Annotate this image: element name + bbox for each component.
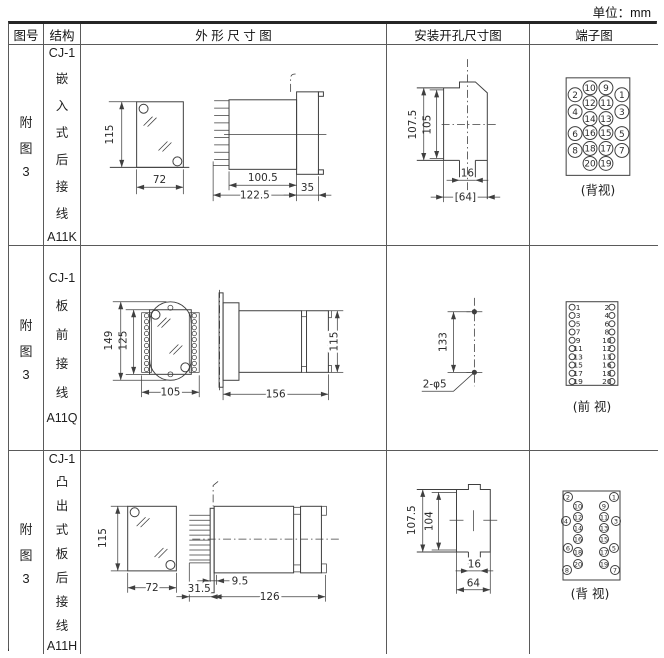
svg-text:2: 2 xyxy=(566,493,570,501)
svg-text:13: 13 xyxy=(600,524,608,532)
mounting-plate-arcs xyxy=(150,302,192,380)
unit-label: 单位：mm xyxy=(593,2,651,21)
front-view: 115 72 xyxy=(97,506,177,594)
flange xyxy=(297,92,319,174)
mounting-drawing-row1: 107.5 105 16 [64] xyxy=(387,45,530,246)
dim-height-inner xyxy=(436,492,441,550)
svg-text:17: 17 xyxy=(600,145,611,155)
svg-text:19: 19 xyxy=(573,377,583,386)
structure-cell-row2: CJ-1板前接线A11Q xyxy=(44,246,81,451)
mounting-svg-row2: 133 2-φ5 xyxy=(387,246,529,450)
terminal-pins xyxy=(189,515,210,560)
front-view: 115 72 xyxy=(104,102,189,194)
side-view: 100.5 122.5 35 xyxy=(213,74,331,202)
mounting-plate xyxy=(210,508,214,592)
header-structure: 结构 xyxy=(44,24,81,45)
glass-hatch xyxy=(169,345,182,355)
dim-label-pin-length: 31.5 xyxy=(188,583,211,595)
rear-cover xyxy=(307,311,329,373)
terminal-drawing-row2: (前 视) 1234567891011121313151617181920 xyxy=(530,246,658,451)
dim-front-height xyxy=(119,102,124,168)
svg-text:18: 18 xyxy=(584,145,596,155)
dim-label-front-height: 115 xyxy=(97,528,109,548)
svg-text:16: 16 xyxy=(584,129,596,139)
fig-no-cell-row2: 附图3 xyxy=(9,246,44,451)
corner-screw-icon xyxy=(130,508,139,517)
dim-label-width: 64 xyxy=(467,577,481,589)
view-label: (背 视) xyxy=(571,586,610,601)
front-view: 149 125 105 xyxy=(103,302,199,399)
svg-text:11: 11 xyxy=(600,513,608,521)
svg-text:15: 15 xyxy=(600,129,611,139)
structure-cell-row3: CJ-1凸出式板后接线A11H xyxy=(44,451,81,654)
svg-text:12: 12 xyxy=(574,513,582,521)
terminal-svg-row1: (背视) 2109141211314136161558181772019 xyxy=(530,45,658,245)
svg-text:3: 3 xyxy=(619,108,625,118)
svg-text:17: 17 xyxy=(600,548,608,556)
svg-text:18: 18 xyxy=(574,548,582,556)
svg-text:1: 1 xyxy=(619,91,625,101)
svg-text:4: 4 xyxy=(572,108,578,118)
terminal-svg-row2: (前 视) 1234567891011121313151617181920 xyxy=(530,246,658,450)
dim-label-height-inner: 104 xyxy=(424,511,436,531)
view-label: (背视) xyxy=(581,182,616,197)
svg-text:11: 11 xyxy=(600,99,611,109)
side-view: 9.5 31.5 126 xyxy=(176,481,341,603)
svg-text:4: 4 xyxy=(564,517,568,525)
glass-hatch xyxy=(144,117,157,127)
fig-no-cell-row1: 附图3 xyxy=(9,45,44,246)
view-label: (前 视) xyxy=(573,399,612,414)
page: 单位：mm 图号 结构 外 形 尺 寸 图 安装开孔尺寸图 端子图 附图3 CJ… xyxy=(0,0,664,658)
svg-text:7: 7 xyxy=(613,566,617,574)
svg-text:7: 7 xyxy=(619,147,625,157)
svg-text:1: 1 xyxy=(612,493,616,501)
glass-hatch xyxy=(155,548,168,558)
dim-height-inner xyxy=(434,90,439,159)
structure-cell-row1: CJ-1嵌入式后接线A11K xyxy=(44,45,81,246)
dim-label-body-height: 125 xyxy=(118,331,130,351)
dim-label-body-length: 100.5 xyxy=(248,172,278,184)
corner-screw-icon xyxy=(173,157,182,166)
dim-label-front-width: 72 xyxy=(153,174,166,186)
svg-text:14: 14 xyxy=(584,115,596,125)
fig-no-cell-row3: 附图3 xyxy=(9,451,44,654)
outline-svg-row3: 115 72 xyxy=(81,451,386,654)
svg-text:9: 9 xyxy=(603,84,609,94)
svg-text:8: 8 xyxy=(572,147,578,157)
rear-cover xyxy=(301,506,322,573)
terminal-circles: 1234567891011121313151617181920 xyxy=(569,303,615,386)
mounting-svg-row1: 107.5 105 16 [64] xyxy=(387,45,529,245)
dim-hole-spacing xyxy=(451,312,456,373)
outline-drawing-row3: 115 72 xyxy=(81,451,387,654)
terminal-circles: 2110941211314136161551817820197 xyxy=(562,493,621,575)
dim-label-height-inner: 105 xyxy=(422,115,434,135)
glass-hatch xyxy=(158,142,171,152)
terminal-drawing-row1: (背视) 2109141211314136161558181772019 xyxy=(530,45,658,246)
handle-centerline xyxy=(213,481,218,506)
mounting-drawing-row2: 133 2-φ5 xyxy=(387,246,530,451)
mounting-svg-row3: 107.5 104 16 64 xyxy=(387,451,529,654)
outline-svg-row1: 115 72 1 xyxy=(81,45,386,245)
dim-label-hole-spacing: 133 xyxy=(438,332,450,352)
header-terminal: 端子图 xyxy=(530,24,658,45)
glass-hatch xyxy=(157,318,170,328)
svg-text:16: 16 xyxy=(574,535,582,543)
dim-label-flange-width: 35 xyxy=(301,182,314,194)
terminal-svg-row3: (背 视) 2110941211314136161551817820197 xyxy=(530,451,658,654)
spec-table: 图号 结构 外 形 尺 寸 图 安装开孔尺寸图 端子图 附图3 CJ-1嵌入式后… xyxy=(8,21,657,651)
terminal-circles: 2109141211314136161558181772019 xyxy=(568,81,629,171)
svg-text:20: 20 xyxy=(584,160,596,170)
terminal-pins xyxy=(214,101,229,160)
svg-text:5: 5 xyxy=(619,130,625,140)
dim-label-notch-width: 16 xyxy=(461,167,474,179)
header-outline: 外 形 尺 寸 图 xyxy=(81,24,387,45)
dim-label-front-width: 105 xyxy=(160,387,180,399)
svg-text:10: 10 xyxy=(574,502,582,510)
svg-text:5: 5 xyxy=(612,544,616,552)
svg-text:19: 19 xyxy=(600,560,608,568)
svg-text:15: 15 xyxy=(600,535,608,543)
dim-label-front-height: 115 xyxy=(104,125,116,145)
hole-note-label: 2-φ5 xyxy=(423,379,447,391)
svg-text:14: 14 xyxy=(574,524,582,532)
outline-drawing-row2: 149 125 105 xyxy=(81,246,387,451)
dim-body-height xyxy=(131,310,136,375)
corner-screw-icon xyxy=(181,363,190,372)
dim-label-plate-offset: 9.5 xyxy=(232,575,249,587)
svg-text:19: 19 xyxy=(600,160,612,170)
dim-label-front-width: 72 xyxy=(145,582,158,594)
svg-text:13: 13 xyxy=(600,115,611,125)
dim-label-height-outer: 107.5 xyxy=(407,110,419,140)
svg-text:2: 2 xyxy=(572,91,578,101)
mounting-drawing-row3: 107.5 104 16 64 xyxy=(387,451,530,654)
corner-screw-icon xyxy=(139,104,148,113)
dim-label-height-outer: 107.5 xyxy=(406,505,418,535)
svg-text:3: 3 xyxy=(614,517,618,525)
svg-text:6: 6 xyxy=(572,130,578,140)
outline-drawing-row1: 115 72 1 xyxy=(81,45,387,246)
dim-label-rear-height: 115 xyxy=(328,332,340,352)
side-view: 156 115 xyxy=(219,290,343,401)
dim-label-width: [64] xyxy=(455,192,476,204)
svg-text:10: 10 xyxy=(584,84,596,94)
header-fig-no: 图号 xyxy=(9,24,44,45)
terminal-drawing-row3: (背 视) 2110941211314136161551817820197 xyxy=(530,451,658,654)
glass-hatch xyxy=(137,517,150,527)
header-mounting: 安装开孔尺寸图 xyxy=(387,24,530,45)
dim-front-height xyxy=(115,506,120,571)
svg-text:6: 6 xyxy=(566,544,570,552)
dim-label-notch-width: 16 xyxy=(468,558,481,570)
svg-text:12: 12 xyxy=(584,99,595,109)
dim-label-total-length: 122.5 xyxy=(240,190,270,202)
svg-text:8: 8 xyxy=(565,566,569,574)
corner-screw-icon xyxy=(151,310,160,319)
corner-screw-icon xyxy=(166,560,175,569)
svg-text:20: 20 xyxy=(574,560,582,568)
dim-label-total-length: 126 xyxy=(260,591,280,603)
outline-svg-row2: 149 125 105 xyxy=(81,246,386,450)
handle-centerline xyxy=(291,74,296,92)
dim-label-plate-height: 149 xyxy=(103,331,115,351)
strip-screws xyxy=(144,314,196,372)
dim-label-total-length: 156 xyxy=(266,389,286,401)
svg-text:9: 9 xyxy=(602,502,606,510)
